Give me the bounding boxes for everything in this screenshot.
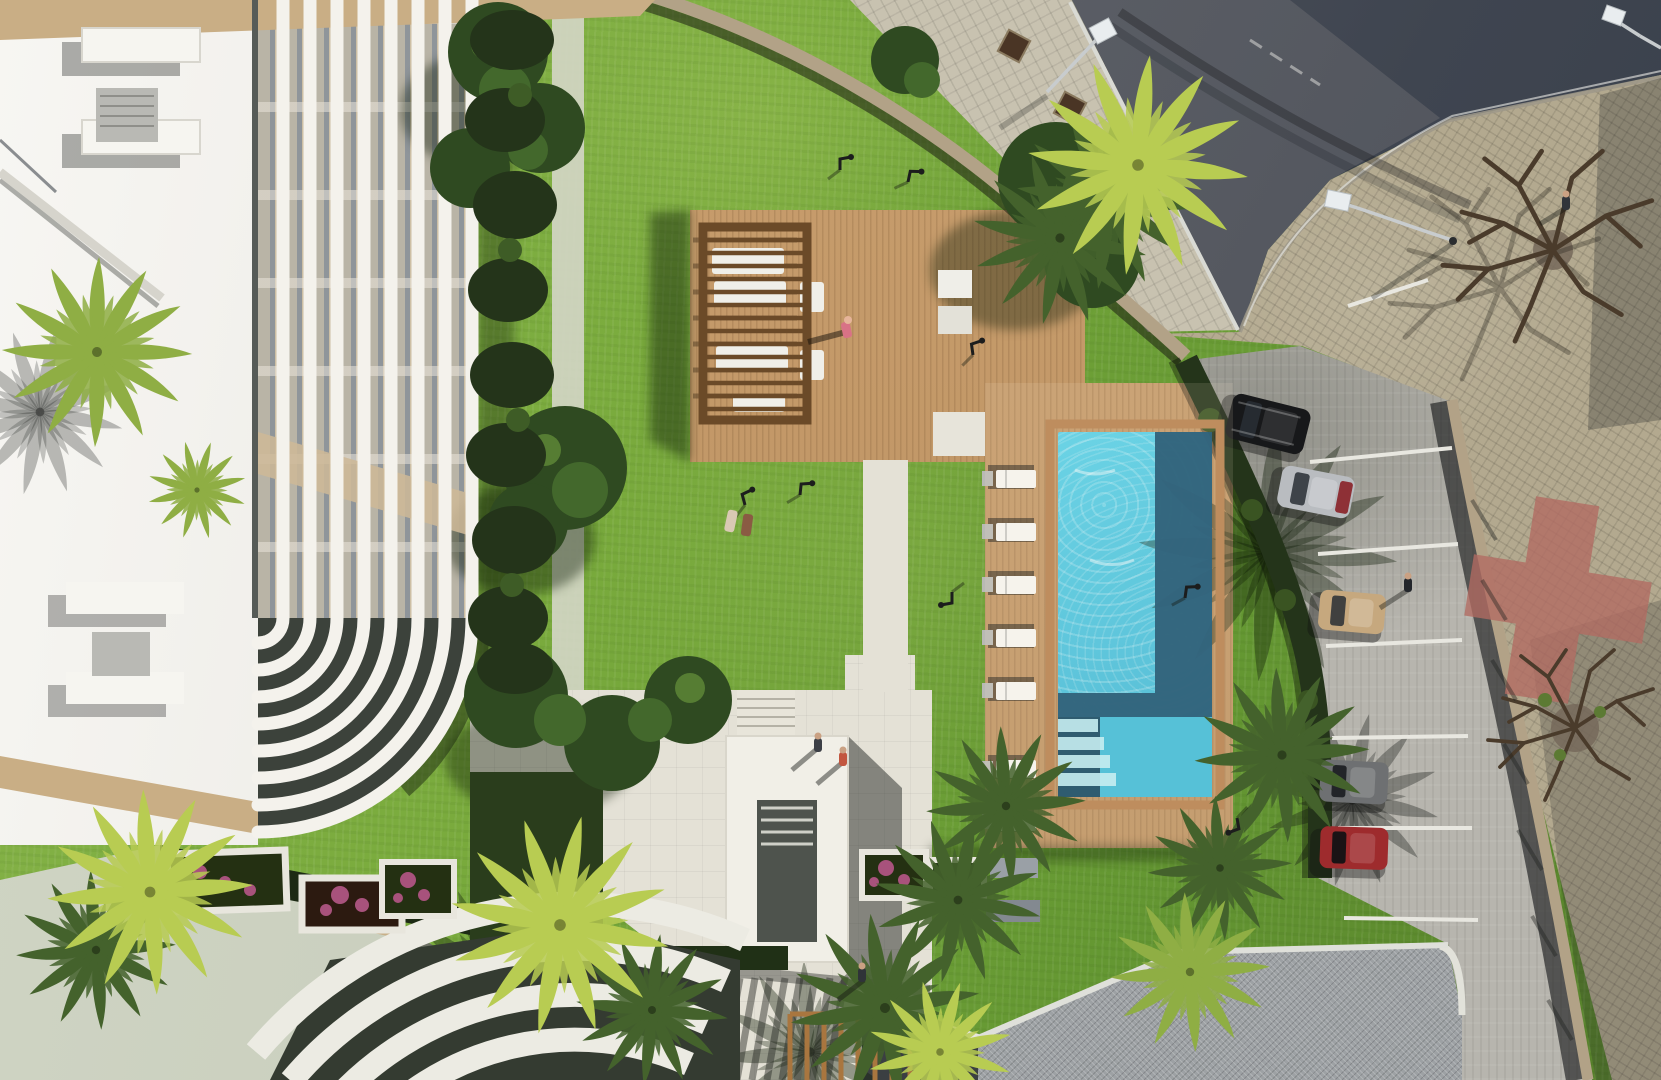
lower-wall-band [0, 756, 258, 834]
pergola-slats [703, 240, 807, 409]
deck-access-pad [933, 412, 985, 456]
car-red [1309, 825, 1389, 879]
promenade-details [1390, 78, 1661, 1080]
lane-marking [1250, 40, 1320, 85]
car-beige [1307, 588, 1387, 643]
street-lamp-head [1602, 5, 1626, 26]
gravel-curb [1440, 946, 1462, 1015]
tree-pit [998, 30, 1030, 62]
person-on-deck [808, 316, 853, 342]
deck-connector-path [863, 460, 908, 692]
street-lamp-head [1324, 190, 1351, 212]
pergola [693, 227, 972, 420]
deck-lounger [938, 306, 972, 334]
person-parking [1380, 573, 1412, 609]
detail-overlay [0, 0, 1661, 1080]
street-lamp-head [1089, 18, 1117, 44]
aerial-render [0, 0, 1661, 1080]
deck-lounger [938, 270, 972, 298]
